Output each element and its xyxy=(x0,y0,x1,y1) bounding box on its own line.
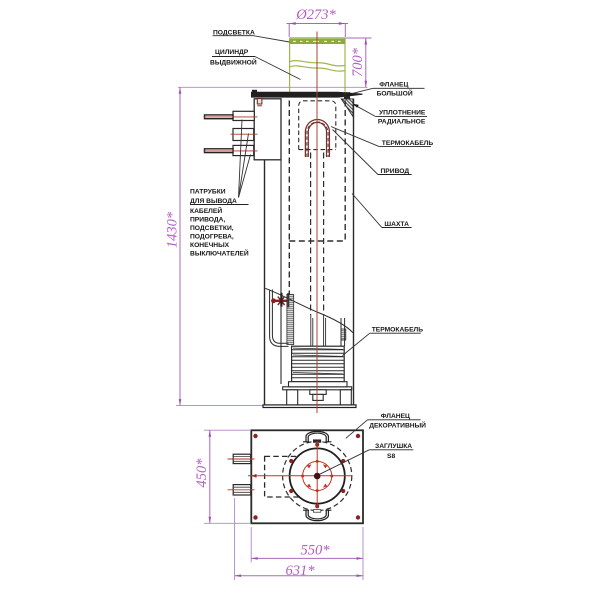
svg-text:450*: 450* xyxy=(194,458,210,488)
svg-text:ПОДСВЕТКИ,: ПОДСВЕТКИ, xyxy=(190,225,234,232)
svg-text:ПОДОГРЕВА,: ПОДОГРЕВА, xyxy=(190,233,234,240)
svg-text:631*: 631* xyxy=(286,563,316,579)
svg-text:1430*: 1430* xyxy=(165,211,181,248)
svg-text:КОНЕЧНЫХ: КОНЕЧНЫХ xyxy=(190,242,230,249)
svg-text:ШАХТА: ШАХТА xyxy=(384,221,409,228)
svg-text:РАДИАЛЬНОЕ: РАДИАЛЬНОЕ xyxy=(378,118,426,125)
svg-text:S8: S8 xyxy=(387,453,395,460)
svg-text:700*: 700* xyxy=(350,47,366,77)
svg-text:ФЛАНЕЦ: ФЛАНЕЦ xyxy=(379,81,408,88)
svg-text:ЦИЛИНДР: ЦИЛИНДР xyxy=(215,49,249,56)
svg-text:550*: 550* xyxy=(301,542,331,558)
svg-text:ЗАГЛУШКА: ЗАГЛУШКА xyxy=(375,443,412,450)
svg-text:ПРИВОД: ПРИВОД xyxy=(381,168,410,175)
svg-text:ТЕРМОКАБЕЛЬ: ТЕРМОКАБЕЛЬ xyxy=(372,327,424,334)
svg-text:КАБЕЛЕЙ: КАБЕЛЕЙ xyxy=(190,206,222,215)
svg-text:ПАТРУБКИ: ПАТРУБКИ xyxy=(190,188,226,195)
svg-text:ФЛАНЕЦ: ФЛАНЕЦ xyxy=(381,413,410,420)
svg-text:БОЛЬШОЙ: БОЛЬШОЙ xyxy=(377,88,413,97)
svg-text:УПЛОТНЕНИЕ: УПЛОТНЕНИЕ xyxy=(379,110,426,117)
svg-text:ВЫКЛЮЧАТЕЛЕЙ: ВЫКЛЮЧАТЕЛЕЙ xyxy=(190,248,249,257)
svg-text:ПРИВОДА,: ПРИВОДА, xyxy=(190,216,225,223)
svg-text:ТЕРМОКАБЕЛЬ: ТЕРМОКАБЕЛЬ xyxy=(382,140,434,147)
svg-text:Ø273*: Ø273* xyxy=(295,7,336,23)
svg-text:ВЫДВИЖНОЙ: ВЫДВИЖНОЙ xyxy=(210,58,257,67)
svg-text:ДЛЯ ВЫВОДА: ДЛЯ ВЫВОДА xyxy=(190,198,237,205)
svg-text:ДЕКОРАТИВНЫЙ: ДЕКОРАТИВНЫЙ xyxy=(369,420,426,429)
